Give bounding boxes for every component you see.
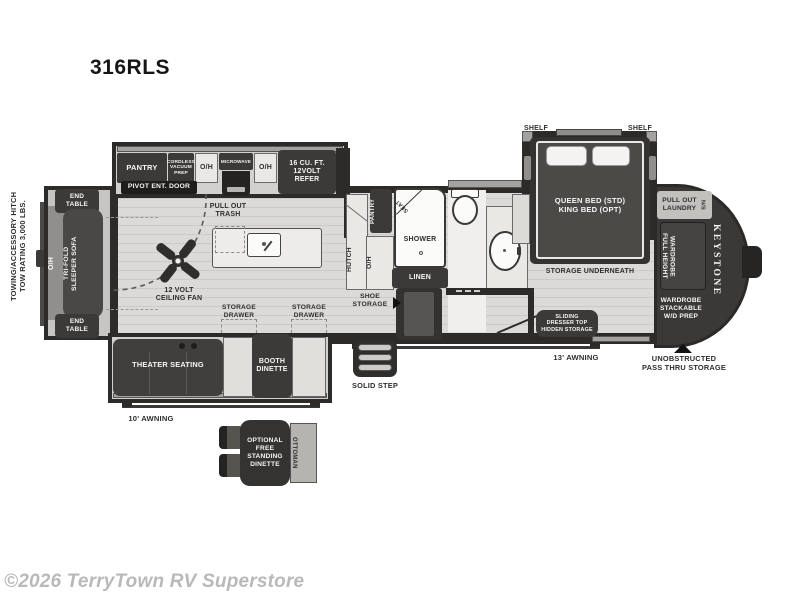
bed-label: QUEEN BED (STD) KING BED (OPT) bbox=[536, 197, 644, 215]
oh-right-label: O/H bbox=[259, 164, 272, 172]
shoe-arrow-icon bbox=[393, 297, 401, 309]
page-title: 316RLS bbox=[90, 56, 210, 81]
awning10-cap-right bbox=[310, 402, 320, 407]
bath-door-dash bbox=[456, 290, 480, 292]
keystone-brand: KEYSTONE bbox=[710, 222, 728, 298]
cordless-vacuum-prep: CORDLESS VACUUM PREP bbox=[168, 153, 194, 183]
shoe-label: SHOE STORAGE bbox=[348, 293, 392, 309]
awning10-line bbox=[122, 405, 320, 408]
refer-label: 16 CU. FT. 12VOLT REFER bbox=[289, 160, 324, 185]
end-table-bottom-label: END TABLE bbox=[66, 318, 88, 333]
pantry2-label: PANTRY bbox=[370, 189, 392, 233]
shower-label: SHOWER bbox=[396, 236, 444, 244]
dresser-pointer-line bbox=[494, 312, 540, 336]
fan-label: 12 VOLT CEILING FAN bbox=[141, 287, 217, 304]
microwave-label: MICROWAVE bbox=[221, 159, 251, 164]
bed-slide-window bbox=[556, 129, 622, 136]
shower-drain-icon bbox=[419, 251, 423, 255]
step-tread-2 bbox=[358, 354, 392, 361]
theater-label: THEATER SEATING bbox=[113, 361, 223, 370]
pillow-right-icon bbox=[592, 146, 630, 166]
entry-landing-inset bbox=[404, 292, 434, 336]
bath-faucet-icon bbox=[517, 247, 521, 255]
solid-step-label: SOLID STEP bbox=[345, 382, 405, 391]
ottoman-label: OTTOMAN bbox=[290, 423, 317, 483]
copyright-text: ©2026 TerryTown RV Superstore bbox=[4, 571, 324, 593]
ns-label: N/S bbox=[699, 193, 711, 217]
bed-slide-trim bbox=[448, 180, 522, 188]
hutch-oh-label: O/H bbox=[366, 236, 394, 290]
bed-rail-pad-right bbox=[649, 156, 656, 180]
range-icon bbox=[222, 171, 250, 196]
cupholder-icon-1 bbox=[179, 343, 185, 349]
linen-label: LINEN bbox=[409, 274, 431, 282]
wd-prep-label: WARDROBE STACKABLE W/D PREP bbox=[654, 297, 708, 320]
booth-bench-left bbox=[223, 337, 253, 397]
optional-dinette-table: OPTIONAL FREE STANDING DINETTE bbox=[240, 420, 290, 486]
hutch-label: HUTCH bbox=[346, 230, 368, 290]
sofa-label: TRI-FOLD SLEEPER SOFA bbox=[63, 209, 103, 318]
pillow-left-icon bbox=[546, 146, 587, 166]
drawer1-label: STORAGE DRAWER bbox=[212, 304, 266, 320]
pantry-label: PANTRY bbox=[126, 164, 157, 173]
refrigerator: 16 CU. FT. 12VOLT REFER bbox=[278, 150, 336, 194]
wardrobe-label: FULL HEIGHT WARDROBE bbox=[660, 222, 706, 290]
pantry-cabinet: PANTRY bbox=[117, 153, 167, 183]
tow-hitch-note: TOWING/ACCESSORY HITCH TOW RATING 3,000 … bbox=[10, 152, 34, 340]
laundry-label: PULL OUT LAUNDRY bbox=[662, 197, 696, 213]
sink-drain-icon bbox=[262, 242, 266, 246]
microwave-cabinet: MICROWAVE bbox=[219, 153, 253, 170]
awning10-cap-left bbox=[122, 402, 132, 407]
theater-divider-2 bbox=[186, 352, 187, 394]
drawer2-label: STORAGE DRAWER bbox=[282, 304, 336, 320]
end-table-top-label: END TABLE bbox=[66, 193, 88, 208]
drawer2-outline bbox=[291, 319, 327, 333]
drawer1-outline bbox=[221, 319, 257, 333]
dresser-callout: SLIDING DRESSER TOP HIDDEN STORAGE bbox=[536, 310, 598, 337]
awning13-label: 13' AWNING bbox=[546, 354, 606, 363]
bed-rail-pad-left bbox=[524, 156, 531, 180]
awning13-cap-right bbox=[590, 343, 600, 348]
oh-cabinet-left: O/H bbox=[195, 153, 218, 183]
pass-thru-label: UNOBSTRUCTED PASS THRU STORAGE bbox=[636, 355, 732, 372]
storage-underneath-label: STORAGE UNDERNEATH bbox=[528, 268, 652, 276]
oh-left-label: O/H bbox=[200, 164, 213, 172]
linen-cabinet: LINEN bbox=[392, 268, 448, 288]
end-table-bottom: END TABLE bbox=[55, 314, 99, 338]
floorplan-diagram: 316RLS ©2026 TerryTown RV Superstore TOW… bbox=[0, 0, 800, 600]
range-grill bbox=[227, 187, 245, 192]
trash-pullout-outline bbox=[215, 226, 245, 253]
cordless-vacuum-label: CORDLESS VACUUM PREP bbox=[167, 160, 195, 177]
king-pin-icon bbox=[742, 246, 762, 278]
dresser-label: SLIDING DRESSER TOP HIDDEN STORAGE bbox=[541, 314, 593, 333]
booth-label: BOOTH DINETTE bbox=[256, 358, 287, 375]
dinette-label: OPTIONAL FREE STANDING DINETTE bbox=[247, 437, 283, 468]
pass-thru-arrow-icon bbox=[674, 344, 692, 353]
trash-label: PULL OUT TRASH bbox=[200, 203, 256, 220]
step-tread-1 bbox=[358, 344, 392, 351]
booth-table: BOOTH DINETTE bbox=[252, 334, 292, 398]
theater-divider-1 bbox=[149, 352, 150, 394]
dresser-slide-trim bbox=[592, 336, 650, 342]
cupholder-icon-2 bbox=[191, 343, 197, 349]
ceiling-fan-icon bbox=[150, 233, 206, 289]
step-tread-3 bbox=[358, 364, 392, 371]
bath-sink-drain-icon bbox=[503, 249, 506, 252]
nightstand-left bbox=[512, 194, 530, 244]
toilet-icon bbox=[452, 195, 478, 225]
booth-bench-right bbox=[292, 337, 326, 397]
awning10-label: 10' AWNING bbox=[118, 415, 184, 424]
oh-cabinet-right: O/H bbox=[254, 153, 277, 183]
